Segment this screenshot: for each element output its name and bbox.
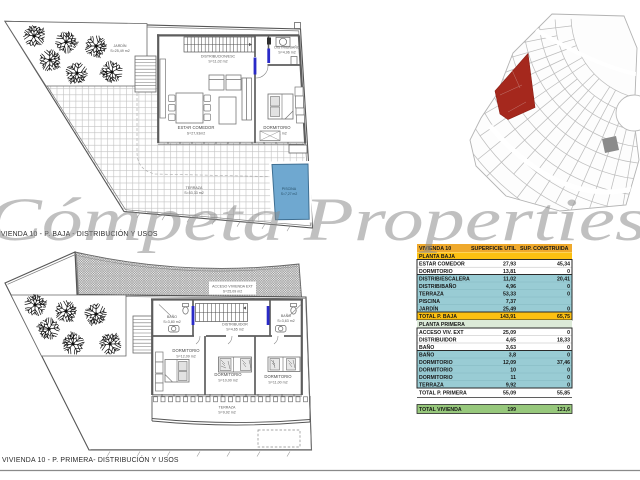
svg-text:121,6: 121,6 — [557, 407, 570, 413]
svg-text:TERRAZA: TERRAZA — [219, 406, 236, 410]
svg-text:3,8: 3,8 — [509, 352, 516, 358]
svg-text:DORMITORIO: DORMITORIO — [419, 360, 453, 366]
svg-text:VIVIENDA 10 - P. PRIMERA- DIST: VIVIENDA 10 - P. PRIMERA- DISTRIBUCIÓN Y… — [2, 455, 179, 464]
svg-text:199: 199 — [507, 407, 516, 413]
svg-text:DORMITORIO: DORMITORIO — [419, 269, 453, 275]
svg-text:TOTAL P. BAJA: TOTAL P. BAJA — [419, 314, 457, 320]
svg-text:4,96: 4,96 — [506, 284, 516, 290]
svg-text:DORMITORIO: DORMITORIO — [419, 367, 453, 373]
svg-text:27,93: 27,93 — [503, 261, 516, 267]
svg-text:DORMITORIO: DORMITORIO — [214, 372, 242, 377]
svg-text:0: 0 — [567, 352, 570, 358]
svg-text:TOTAL VIVIENDA: TOTAL VIVIENDA — [419, 407, 462, 413]
svg-text:0: 0 — [567, 269, 570, 275]
svg-text:3,63: 3,63 — [506, 345, 516, 351]
svg-text:12,09: 12,09 — [503, 360, 516, 366]
svg-text:S=25,49 m2: S=25,49 m2 — [110, 49, 129, 53]
svg-text:S=4,65 m2: S=4,65 m2 — [226, 328, 243, 332]
svg-text:DISTRIB/BAÑO: DISTRIB/BAÑO — [274, 45, 300, 50]
svg-text:0: 0 — [567, 345, 570, 351]
svg-text:10: 10 — [510, 367, 516, 373]
svg-text:45,34: 45,34 — [557, 261, 570, 267]
svg-text:13,81: 13,81 — [503, 269, 516, 275]
svg-text:PLANTA PRIMERA: PLANTA PRIMERA — [419, 322, 465, 328]
svg-text:0: 0 — [567, 284, 570, 290]
svg-text:DISTRIBUIDOR: DISTRIBUIDOR — [222, 323, 248, 327]
svg-text:DORMITORIO: DORMITORIO — [263, 125, 291, 130]
svg-text:11,02: 11,02 — [503, 276, 516, 282]
svg-text:BAÑO: BAÑO — [167, 314, 177, 319]
svg-text:DISTRIB/BAÑO: DISTRIB/BAÑO — [419, 283, 456, 290]
svg-text:S=3,80 m2: S=3,80 m2 — [163, 320, 180, 324]
svg-text:S=11,02 m2: S=11,02 m2 — [208, 60, 227, 64]
svg-text:55,85: 55,85 — [557, 391, 570, 397]
svg-text:DISTRIBUIDOR: DISTRIBUIDOR — [419, 337, 457, 343]
svg-text:4,65: 4,65 — [506, 337, 516, 343]
svg-text:DORMITORIO: DORMITORIO — [419, 375, 453, 381]
svg-text:65,75: 65,75 — [557, 314, 570, 320]
svg-text:ACCESO VIV. EXT: ACCESO VIV. EXT — [419, 330, 464, 336]
svg-text:0: 0 — [567, 375, 570, 381]
svg-text:S=11,00 m2: S=11,00 m2 — [268, 381, 287, 385]
svg-text:S=3,63 m2: S=3,63 m2 — [277, 319, 294, 323]
svg-text:S=27,93m2: S=27,93m2 — [187, 132, 205, 136]
svg-text:S=4,96 m2: S=4,96 m2 — [278, 51, 295, 55]
svg-text:0: 0 — [567, 382, 570, 388]
svg-text:0: 0 — [567, 306, 570, 312]
svg-text:0: 0 — [567, 367, 570, 373]
svg-text:53,33: 53,33 — [503, 291, 516, 297]
svg-text:55,09: 55,09 — [503, 391, 516, 397]
svg-text:JARDÍN: JARDÍN — [419, 304, 439, 312]
svg-text:37,46: 37,46 — [557, 360, 570, 366]
svg-text:ESTAR COMEDOR: ESTAR COMEDOR — [419, 261, 465, 267]
svg-text:25,49: 25,49 — [503, 306, 516, 312]
svg-text:BAÑO: BAÑO — [419, 351, 434, 358]
svg-text:0: 0 — [567, 291, 570, 297]
svg-text:TERRAZA: TERRAZA — [419, 291, 444, 297]
svg-text:DISTRIBUCION/ESC: DISTRIBUCION/ESC — [201, 55, 236, 59]
svg-text:JARDÍN: JARDÍN — [114, 44, 127, 48]
svg-text:S=25,09 m2: S=25,09 m2 — [223, 290, 242, 294]
svg-text:S=9,92 m2: S=9,92 m2 — [218, 411, 235, 415]
svg-text:ACCESO VIVIENDA EXT: ACCESO VIVIENDA EXT — [212, 285, 254, 289]
svg-text:9,92: 9,92 — [506, 382, 516, 388]
svg-text:S=10,00 m2: S=10,00 m2 — [218, 379, 237, 383]
svg-text:DORMITORIO: DORMITORIO — [172, 348, 200, 353]
svg-text:7,37: 7,37 — [506, 299, 516, 305]
svg-text:TOTAL P. PRIMERA: TOTAL P. PRIMERA — [419, 391, 467, 397]
svg-text:PISCINA: PISCINA — [419, 299, 440, 305]
svg-text:0: 0 — [567, 330, 570, 336]
svg-text:143,91: 143,91 — [500, 314, 516, 320]
svg-text:20,41: 20,41 — [557, 276, 570, 282]
svg-text:S=12,09 m2: S=12,09 m2 — [176, 355, 195, 359]
svg-text:DISTRIB/ESCALERA: DISTRIB/ESCALERA — [419, 276, 470, 282]
svg-text:ESTAR COMEDOR: ESTAR COMEDOR — [178, 125, 215, 130]
svg-text:BAÑO: BAÑO — [419, 344, 434, 351]
svg-text:18,33: 18,33 — [557, 337, 570, 343]
svg-text:Cómpeta Properties: Cómpeta Properties — [0, 187, 640, 254]
svg-text:DORMITORIO: DORMITORIO — [264, 374, 292, 379]
svg-text:11: 11 — [511, 375, 517, 381]
svg-text:TERRAZA: TERRAZA — [419, 382, 444, 388]
svg-text:25,09: 25,09 — [503, 330, 516, 336]
